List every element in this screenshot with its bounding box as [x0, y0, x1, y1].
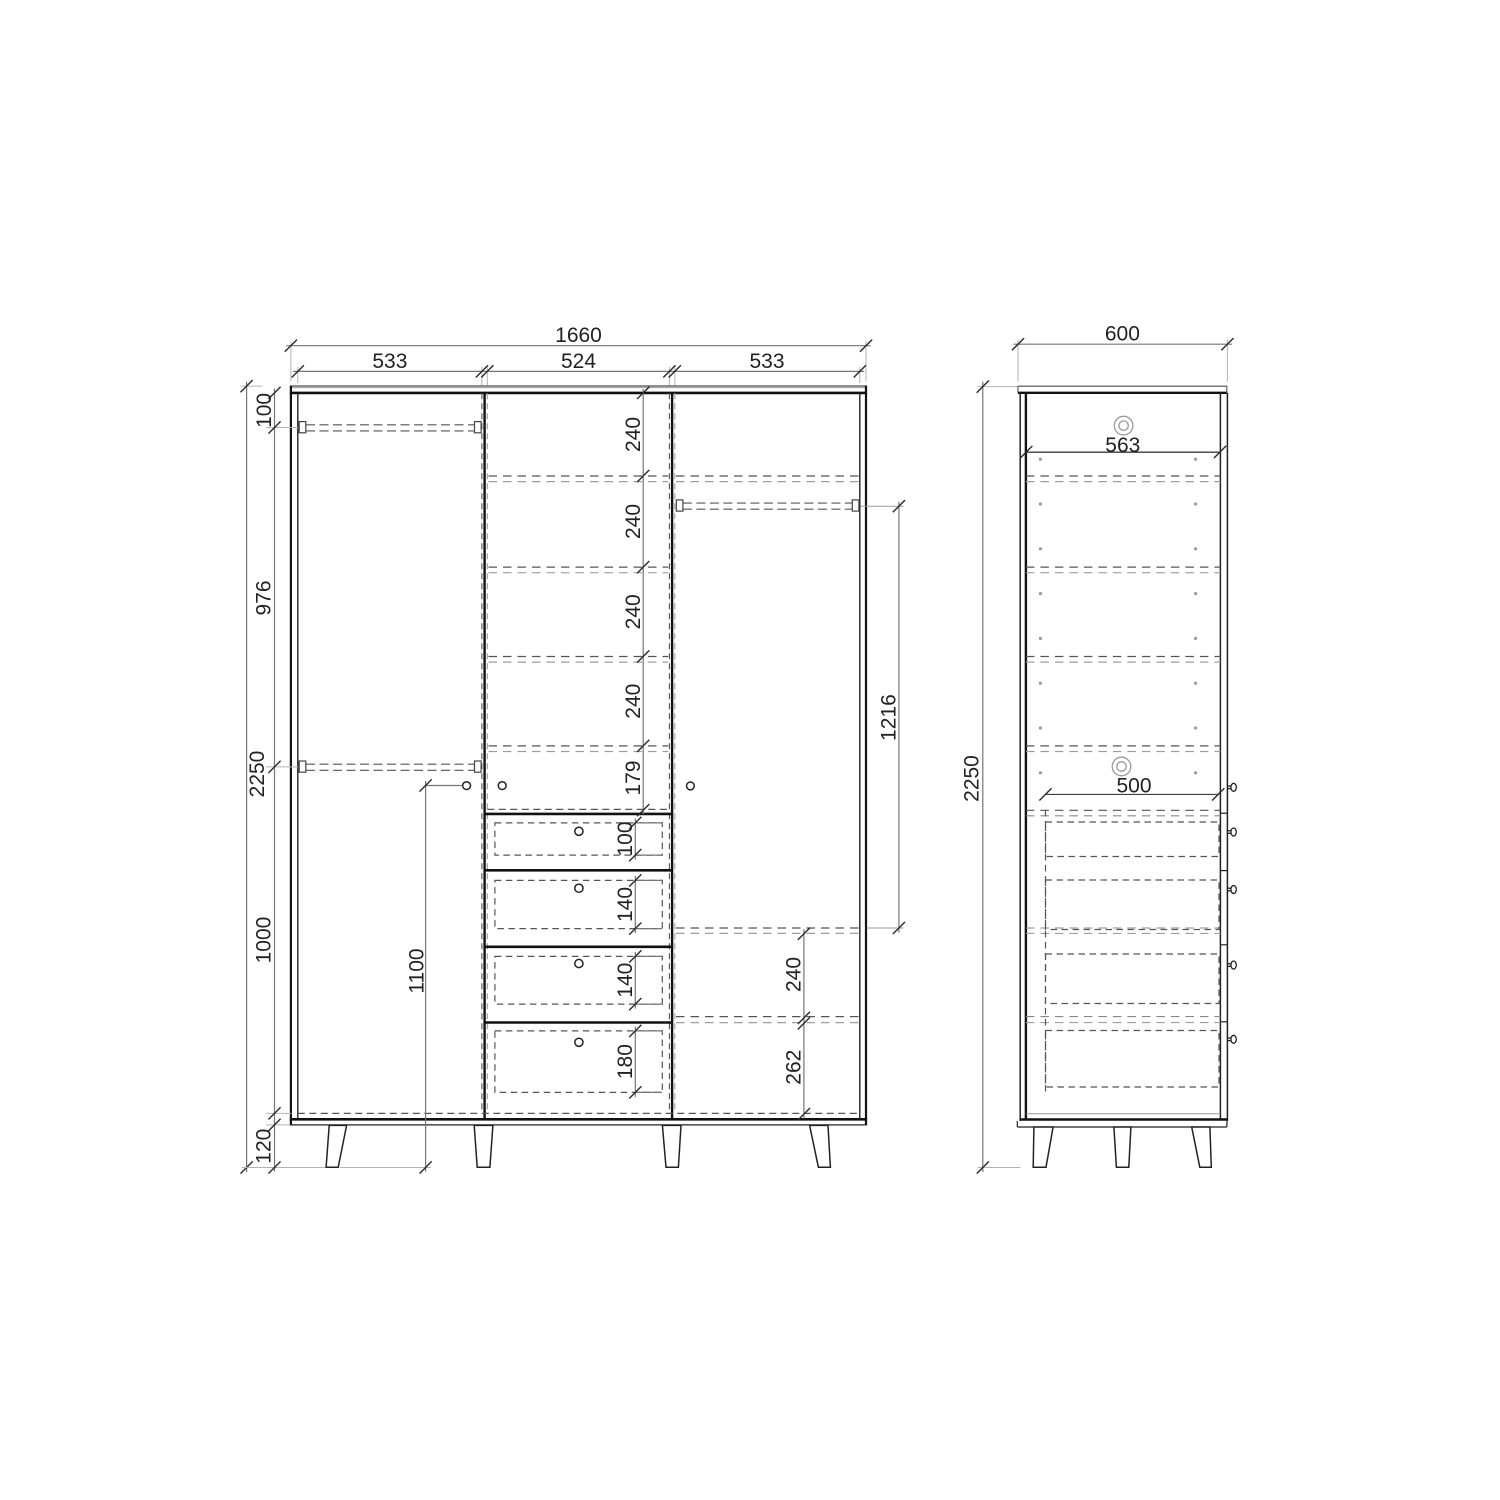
svg-text:240: 240	[622, 504, 645, 539]
svg-text:240: 240	[622, 684, 645, 719]
svg-text:240: 240	[622, 417, 645, 452]
svg-text:2250: 2250	[961, 755, 984, 802]
svg-text:524: 524	[561, 350, 596, 373]
svg-text:100: 100	[253, 393, 276, 428]
svg-text:262: 262	[783, 1050, 806, 1085]
svg-text:600: 600	[1105, 323, 1140, 346]
svg-text:1100: 1100	[406, 948, 429, 993]
svg-text:976: 976	[252, 580, 275, 615]
svg-text:1216: 1216	[877, 694, 900, 741]
svg-text:533: 533	[749, 350, 784, 373]
svg-text:179: 179	[622, 760, 645, 795]
svg-text:1000: 1000	[252, 917, 275, 964]
svg-text:100: 100	[614, 821, 637, 856]
svg-text:140: 140	[614, 963, 637, 998]
svg-text:500: 500	[1116, 774, 1151, 797]
svg-text:1660: 1660	[555, 324, 602, 347]
svg-text:2250: 2250	[246, 751, 269, 798]
svg-text:180: 180	[614, 1044, 637, 1079]
svg-text:533: 533	[372, 350, 407, 373]
svg-text:140: 140	[614, 887, 637, 922]
svg-text:240: 240	[622, 594, 645, 629]
svg-text:563: 563	[1105, 434, 1140, 457]
svg-text:120: 120	[252, 1129, 275, 1164]
svg-text:240: 240	[783, 957, 806, 992]
